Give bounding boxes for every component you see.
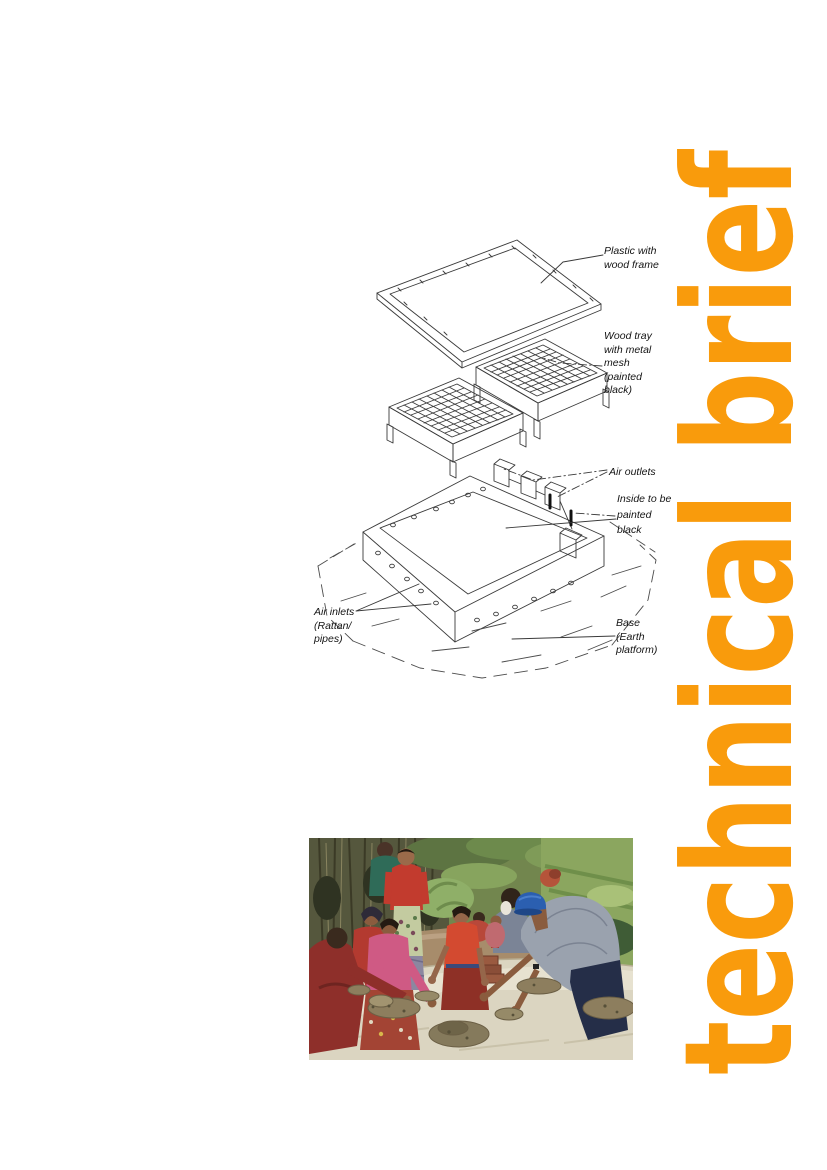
label-inside-painted-black: Inside to be painted black [617, 492, 671, 539]
label-air-inlets: Air inlets (Rattan/ pipes) [314, 606, 354, 647]
wristwatch [533, 964, 539, 969]
vertical-banner-text: technical brief [653, 149, 827, 1075]
painted-black-marks [550, 495, 571, 525]
page: technical brief [0, 0, 827, 1170]
air-outlet-blocks [494, 459, 582, 558]
tray-right [474, 339, 609, 439]
label-wood-tray: Wood tray with metal mesh (painted black… [604, 330, 652, 398]
label-air-outlets: Air outlets [609, 466, 656, 480]
base-frame [363, 459, 604, 642]
earth-platform-sketch [318, 522, 656, 678]
label-base: Base (Earth platform) [616, 617, 657, 658]
label-plastic-with-wood-frame: Plastic with wood frame [604, 245, 659, 272]
glazing-panel [377, 240, 601, 368]
photo-illustration [309, 838, 633, 1060]
tray-left [387, 378, 526, 478]
photo-people-building-earth-platform [309, 838, 633, 1060]
